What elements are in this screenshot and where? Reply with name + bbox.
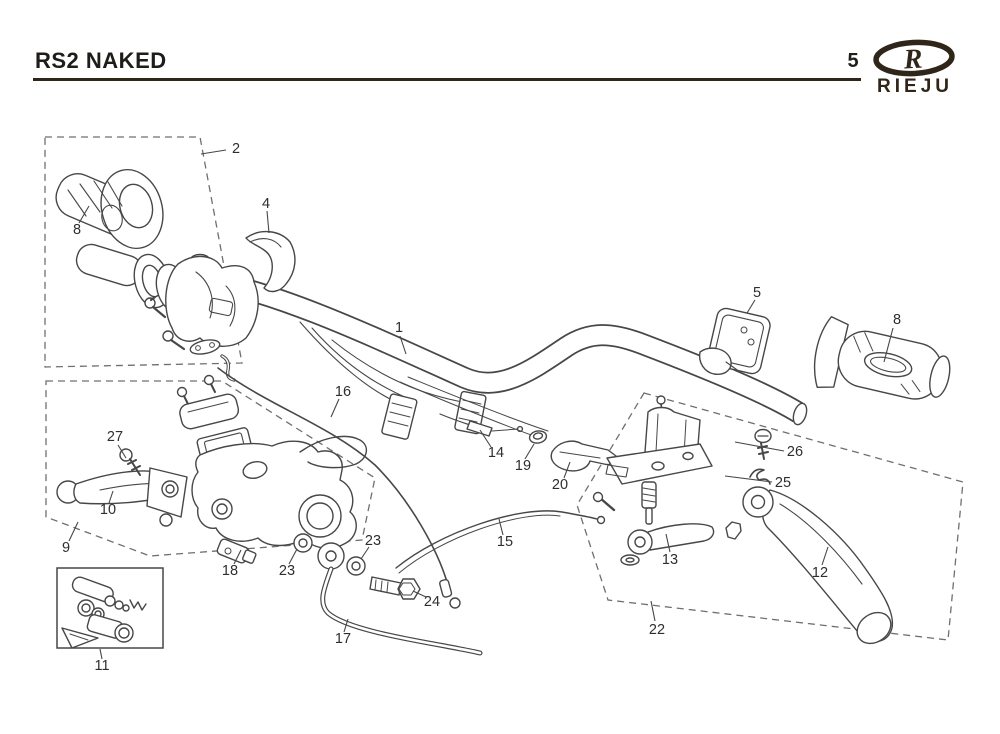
- seal-kit: [62, 575, 146, 648]
- part-label-27: 27: [107, 429, 123, 445]
- switch-housing-5: [700, 307, 772, 376]
- leader-line-19: [525, 444, 534, 459]
- leader-line-5: [747, 300, 755, 313]
- part-label-23: 23: [365, 533, 381, 549]
- part-label-16: 16: [335, 384, 351, 400]
- part-label-22: 22: [649, 622, 665, 638]
- leader-line-16: [331, 399, 339, 417]
- part-label-8: 8: [893, 312, 901, 328]
- part-label-5: 5: [753, 285, 761, 301]
- part-label-26: 26: [787, 444, 803, 460]
- right-grip: [808, 315, 956, 416]
- part-label-15: 15: [497, 534, 513, 550]
- throttle-housing: [166, 255, 258, 347]
- part-label-20: 20: [552, 477, 568, 493]
- banjo-bolt-24: [370, 577, 420, 599]
- part-label-12: 12: [812, 565, 828, 581]
- part-label-4: 4: [262, 196, 270, 212]
- manual-page: RS2 NAKED 5 R RIEJU: [0, 0, 1000, 734]
- leader-line-23: [289, 549, 297, 564]
- part-label-19: 19: [515, 458, 531, 474]
- bracket-20: [551, 441, 616, 471]
- screw-26: [755, 430, 771, 460]
- part-label-10: 10: [100, 502, 116, 518]
- part-label-8: 8: [73, 222, 81, 238]
- leader-line-26: [735, 442, 784, 451]
- part-label-11: 11: [94, 658, 109, 674]
- leader-line-2: [201, 150, 226, 154]
- leader-line-4: [267, 211, 269, 233]
- part-label-18: 18: [222, 563, 238, 579]
- part-label-1: 1: [395, 320, 403, 336]
- part-label-14: 14: [488, 445, 504, 461]
- clutch-lever: [57, 468, 187, 526]
- left-grip: [50, 162, 172, 255]
- part-label-9: 9: [62, 540, 70, 556]
- leader-line-22: [651, 601, 655, 621]
- part-label-2: 2: [232, 141, 240, 157]
- part-label-25: 25: [775, 475, 791, 491]
- part-label-17: 17: [335, 631, 351, 647]
- leader-line-9: [69, 522, 78, 541]
- part-label-13: 13: [662, 552, 678, 568]
- part-label-24: 24: [424, 594, 440, 610]
- part-label-23: 23: [279, 563, 295, 579]
- diagram-art: [0, 0, 1000, 734]
- brake-housing: [594, 396, 713, 524]
- cable-nut-19: [529, 430, 548, 445]
